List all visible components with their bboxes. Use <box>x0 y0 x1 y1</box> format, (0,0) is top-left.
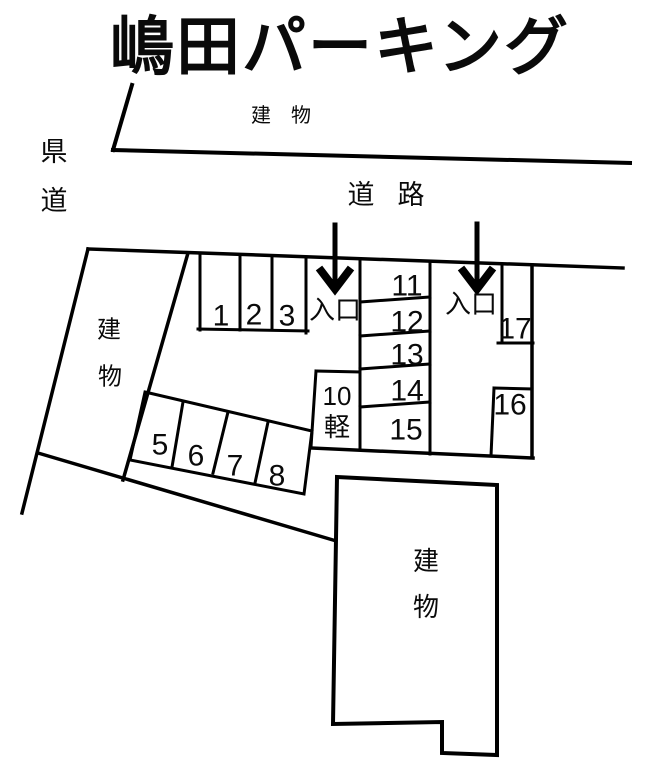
space-10-top-line <box>316 371 360 372</box>
road-lines <box>113 85 630 163</box>
space-13-label: 13 <box>390 339 423 372</box>
prefectural-road-char-1: 県 <box>41 137 68 167</box>
building-top-label: 建 物 <box>251 104 311 127</box>
space-17: 17 <box>498 264 533 346</box>
page-title: 嶋田パーキング <box>110 11 570 83</box>
space-15-label: 15 <box>389 414 422 447</box>
spaces-5-8: 5 6 7 8 <box>130 392 312 494</box>
prefectural-road-label: 県 道 <box>41 137 68 216</box>
building-bottom: 建 物 <box>333 477 497 755</box>
parking-map-canvas: 嶋田パーキング 建 物 県 道 道 路 建 物 1 2 3 <box>0 0 654 768</box>
entrance-right: 入口 <box>445 224 497 319</box>
space-2-label: 2 <box>246 299 263 332</box>
building-left-west-edge <box>22 249 88 513</box>
building-left-label-char-1: 建 <box>97 317 121 344</box>
space-14-label: 14 <box>390 375 423 408</box>
divider-5-6 <box>172 402 183 467</box>
parking-map: 嶋田パーキング 建 物 県 道 道 路 建 物 1 2 3 <box>0 0 654 768</box>
spaces-1-3: 1 2 3 <box>198 253 308 333</box>
space-10-kei: 10 軽 <box>311 371 360 447</box>
road-line <box>113 150 630 163</box>
entrance-left: 入口 <box>309 225 361 325</box>
building-bottom-label-char-2: 物 <box>413 592 439 622</box>
entrance-right-label: 入口 <box>445 289 497 319</box>
title-leader-line <box>113 85 132 150</box>
building-left-label-char-2: 物 <box>98 364 122 391</box>
space-8-label: 8 <box>269 460 286 493</box>
space-17-label: 17 <box>498 313 531 346</box>
lot-bottom-boundary-line <box>311 448 533 458</box>
space-16: 16 <box>491 388 532 456</box>
space-3-label: 3 <box>279 300 296 333</box>
road-label: 道 路 <box>348 180 425 210</box>
space-10-number: 10 <box>323 381 352 411</box>
lot-top-boundary-line <box>88 249 623 268</box>
lot-southwest-boundary-line <box>38 453 333 540</box>
space-12-label: 12 <box>390 306 423 339</box>
building-bottom-label-char-1: 建 <box>413 546 439 576</box>
space-1-label: 1 <box>213 300 230 333</box>
space-5-label: 5 <box>152 429 169 462</box>
prefectural-road-char-2: 道 <box>41 186 68 216</box>
space-6-label: 6 <box>188 440 205 473</box>
space-16-label: 16 <box>493 389 526 422</box>
divider-7-8 <box>255 422 268 483</box>
space-11-label: 11 <box>391 270 422 303</box>
space-10-kei-char: 軽 <box>324 412 350 442</box>
spaces-11-15: 11 12 13 14 15 <box>360 259 430 454</box>
entrance-left-label: 入口 <box>309 295 361 325</box>
space-7-label: 7 <box>227 450 244 483</box>
